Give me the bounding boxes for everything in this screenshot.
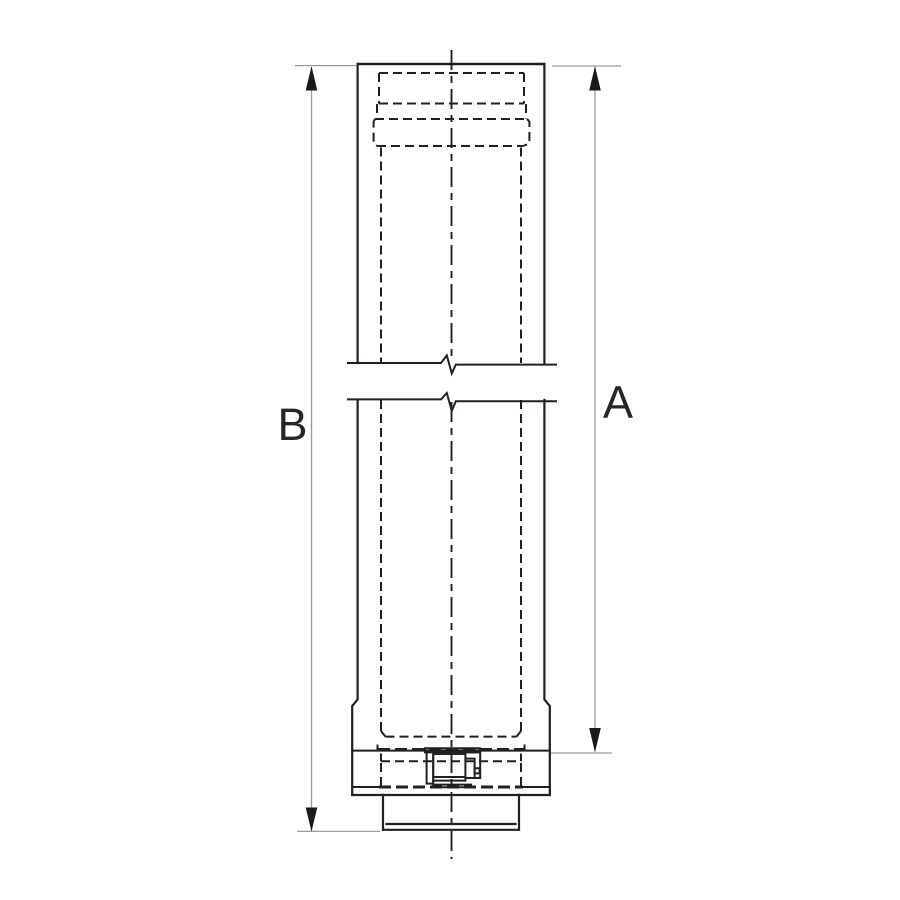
dimension-a-label: A bbox=[603, 377, 633, 428]
socket-bead-left bbox=[374, 119, 377, 146]
arrowhead-a-up bbox=[589, 66, 601, 90]
arrowhead-b-down bbox=[306, 808, 318, 832]
break-line-upper bbox=[347, 356, 557, 374]
inner-end-chamfer-right bbox=[517, 731, 522, 737]
clamp-latch-detail bbox=[425, 748, 480, 787]
flue-pipe-section-drawing: A B bbox=[0, 0, 900, 900]
dimension-a: A bbox=[551, 66, 633, 753]
dimension-b-label: B bbox=[277, 399, 307, 450]
technical-drawing-page: A B bbox=[0, 0, 900, 900]
pipe-left-wall-lower bbox=[352, 400, 357, 795]
dimension-b: B bbox=[277, 66, 380, 832]
arrowhead-a-down bbox=[589, 728, 601, 752]
inner-end-chamfer-left bbox=[381, 731, 386, 737]
arrowhead-b-up bbox=[306, 66, 318, 90]
pipe-right-wall-lower bbox=[544, 400, 549, 795]
socket-bead-right bbox=[523, 119, 529, 146]
clamp-right-notch bbox=[475, 768, 480, 773]
